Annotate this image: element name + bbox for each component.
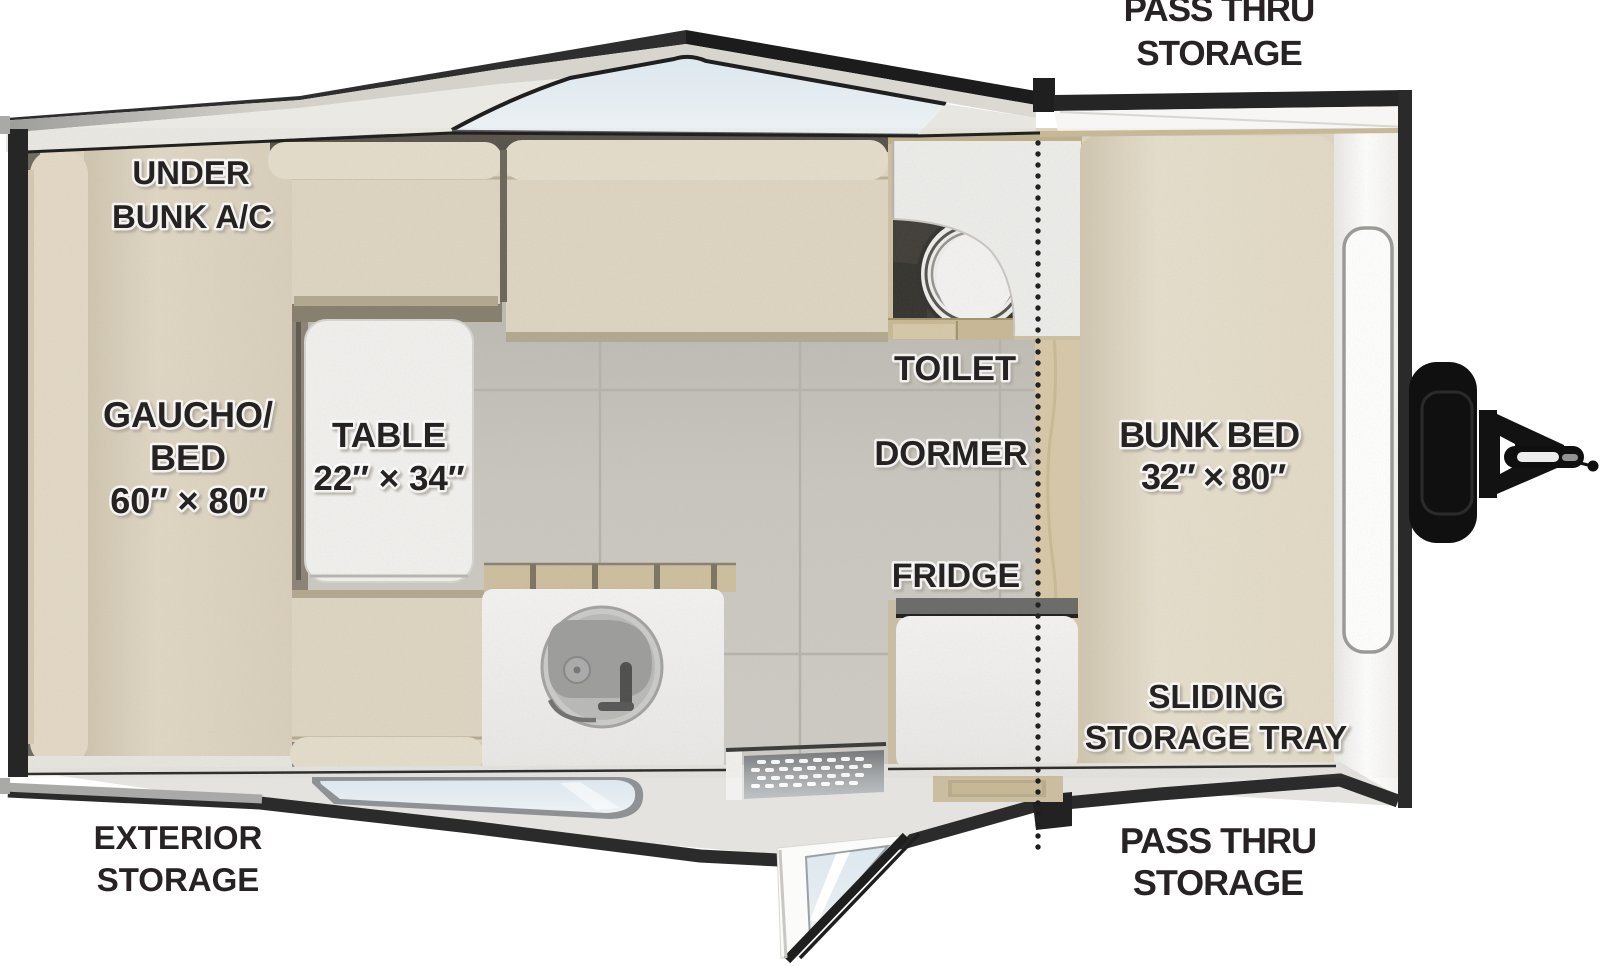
svg-text:STORAGE: STORAGE xyxy=(97,861,260,898)
svg-text:BUNK BED: BUNK BED xyxy=(1119,414,1299,455)
svg-text:GAUCHO/: GAUCHO/ xyxy=(103,394,273,435)
svg-text:PASS THRU: PASS THRU xyxy=(1120,820,1316,861)
svg-text:UNDER: UNDER xyxy=(132,154,250,191)
svg-text:60″ × 80″: 60″ × 80″ xyxy=(110,480,266,521)
svg-text:TOILET: TOILET xyxy=(894,350,1016,388)
svg-text:EXTERIOR: EXTERIOR xyxy=(94,819,263,856)
svg-text:BED: BED xyxy=(150,437,226,478)
svg-text:STORAGE: STORAGE xyxy=(1133,862,1303,903)
svg-text:STORAGE TRAY: STORAGE TRAY xyxy=(1085,720,1347,757)
svg-text:32″ × 80″: 32″ × 80″ xyxy=(1141,456,1286,497)
svg-text:STORAGE: STORAGE xyxy=(1136,34,1301,73)
svg-text:PASS THRU: PASS THRU xyxy=(1124,0,1315,29)
svg-text:SLIDING: SLIDING xyxy=(1148,679,1284,716)
svg-text:22″ × 34″: 22″ × 34″ xyxy=(313,459,465,498)
svg-text:DORMER: DORMER xyxy=(874,435,1027,473)
svg-text:TABLE: TABLE xyxy=(332,416,446,455)
svg-text:BUNK A/C: BUNK A/C xyxy=(112,198,272,235)
svg-text:FRIDGE: FRIDGE xyxy=(892,557,1020,595)
